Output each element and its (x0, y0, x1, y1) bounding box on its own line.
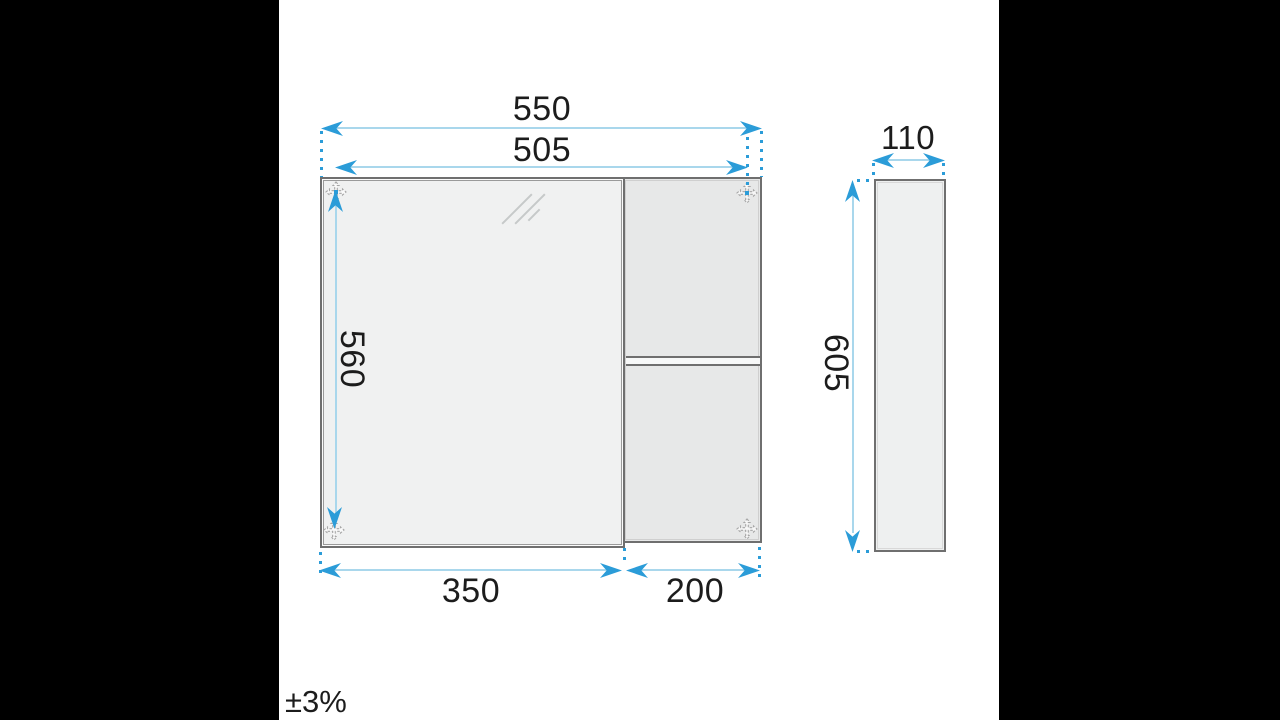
drawing-stage: 550 505 560 350 200 110 605 ±3% (0, 0, 1280, 720)
extension-dotted-line (857, 179, 873, 182)
height-dimension-label: 605 (819, 323, 853, 403)
mounting-point-dot (745, 191, 749, 195)
extension-dotted-line (746, 137, 749, 191)
extension-dotted-line (319, 552, 322, 578)
mounting-height-dimension-label: 560 (335, 319, 369, 399)
extension-dotted-line (872, 163, 875, 179)
extension-dotted-line (320, 131, 323, 177)
extension-dotted-line (758, 547, 761, 578)
depth-dimension-label: 110 (850, 121, 966, 154)
cabinet-side-view (874, 179, 946, 552)
cabinet-shelf (626, 356, 760, 366)
shelf-width-dimension-label: 200 (635, 574, 755, 608)
mounting-point-icon (736, 518, 758, 540)
tolerance-note: ±3% (285, 684, 347, 720)
door-width-dimension-line (330, 569, 612, 571)
mounting-point-dot (334, 190, 338, 194)
side-view-inner-panel (877, 182, 943, 549)
extension-dotted-line (942, 163, 945, 179)
extension-dotted-line (623, 548, 626, 564)
mounting-width-dimension-label: 505 (482, 133, 602, 167)
shelf-width-dimension-line (637, 569, 749, 571)
door-width-dimension-label: 350 (411, 574, 531, 608)
extension-dotted-line (760, 131, 763, 177)
extension-dotted-line (857, 550, 873, 553)
depth-dimension-line (884, 159, 934, 161)
total-width-dimension-label: 550 (482, 92, 602, 126)
